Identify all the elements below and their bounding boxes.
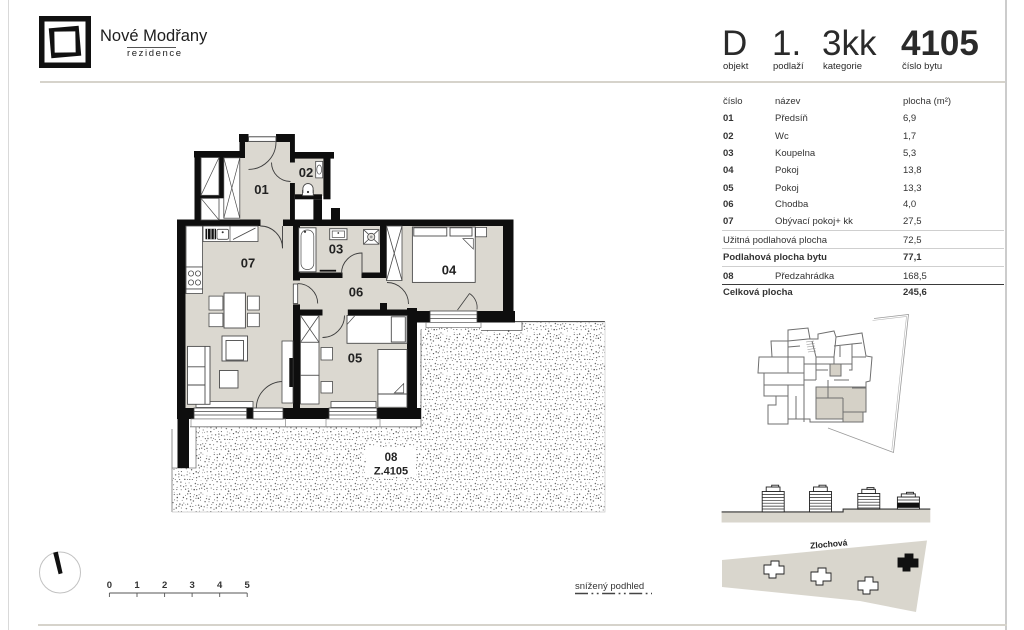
svg-text:snížený podhled: snížený podhled [575, 581, 644, 592]
svg-text:2: 2 [162, 580, 167, 591]
svg-text:01: 01 [254, 182, 268, 197]
svg-text:06: 06 [349, 285, 363, 300]
svg-text:1: 1 [134, 580, 140, 591]
svg-text:0: 0 [107, 580, 112, 591]
svg-text:08: 08 [385, 452, 398, 464]
svg-text:04: 04 [442, 263, 457, 278]
svg-text:3: 3 [189, 580, 194, 591]
svg-text:4: 4 [217, 580, 223, 591]
svg-text:03: 03 [329, 242, 343, 257]
svg-text:Z.4105: Z.4105 [374, 466, 408, 478]
svg-text:07: 07 [241, 256, 255, 271]
svg-text:02: 02 [299, 165, 313, 180]
svg-text:05: 05 [348, 351, 362, 366]
svg-text:5: 5 [245, 580, 251, 591]
